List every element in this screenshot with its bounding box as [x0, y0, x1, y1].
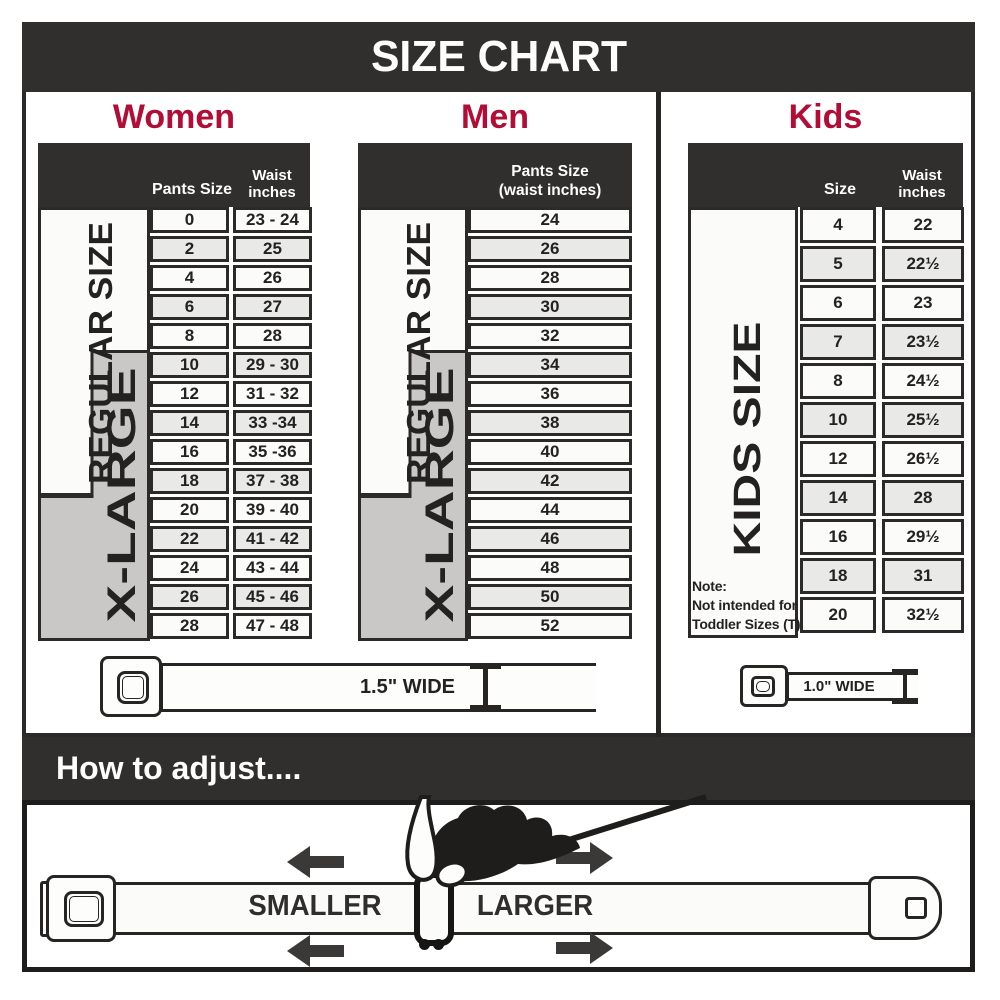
waist-inches-cell: 25: [233, 236, 312, 262]
men-col-line2: (waist inches): [468, 181, 632, 200]
men-table-row: 28: [468, 265, 632, 291]
adjust-buckle-slot-icon: [64, 891, 104, 927]
women-col-waist-line1: Waist: [236, 167, 308, 184]
kids-table-row: 4 22: [800, 207, 964, 243]
belt-slider-icon: [414, 872, 454, 946]
pants-size-cell: 24: [150, 555, 229, 581]
women-table-row: 16 35 -36: [150, 439, 312, 465]
waist-inches-cell: 32½: [882, 597, 964, 633]
kids-table-header: Size Waist inches: [688, 143, 963, 207]
size-chart-title-bar: SIZE CHART: [22, 22, 975, 92]
men-table-row: 42: [468, 468, 632, 494]
waist-inches-cell: 26½: [882, 441, 964, 477]
women-size-table: 0 23 - 24 2 25 4 26 6 27 8 28: [150, 207, 312, 642]
women-table-row: 18 37 - 38: [150, 468, 312, 494]
size-cell: 20: [800, 597, 876, 633]
pants-size-cell: 6: [150, 294, 229, 320]
women-col-waist: Waist inches: [236, 167, 308, 201]
pants-size-cell: 20: [150, 497, 229, 523]
size-cell: 10: [800, 402, 876, 438]
women-col-waist-line2: inches: [236, 184, 308, 201]
kids-note-line3: Toddler Sizes (T): [692, 615, 802, 634]
slider-foot-icon: [419, 939, 430, 950]
pants-size-cell: 34: [468, 352, 632, 378]
pants-size-cell: 44: [468, 497, 632, 523]
pants-size-cell: 28: [468, 265, 632, 291]
waist-inches-cell: 45 - 46: [233, 584, 312, 610]
kids-belt-width-label: 1.0" WIDE: [796, 672, 882, 701]
size-cell: 16: [800, 519, 876, 555]
women-section-title: Women: [38, 97, 310, 137]
men-size-table: 24 26 28 30 32 34 36: [468, 207, 632, 642]
size-cell: 14: [800, 480, 876, 516]
women-table-row: 28 47 - 48: [150, 613, 312, 639]
kids-side-labels: KIDS SIZE: [688, 207, 798, 638]
waist-inches-cell: 47 - 48: [233, 613, 312, 639]
pants-size-cell: 26: [468, 236, 632, 262]
adult-width-gauge-cap-icon: [470, 664, 501, 669]
waist-inches-cell: 28: [882, 480, 964, 516]
pants-size-cell: 4: [150, 265, 229, 291]
slider-foot-icon: [433, 939, 444, 950]
kids-width-gauge-cap-icon: [892, 700, 918, 704]
waist-inches-cell: 31: [882, 558, 964, 594]
kids-table-row: 6 23: [800, 285, 964, 321]
size-cell: 12: [800, 441, 876, 477]
size-cell: 8: [800, 363, 876, 399]
men-table-row: 30: [468, 294, 632, 320]
women-table-row: 20 39 - 40: [150, 497, 312, 523]
women-table-row: 12 31 - 32: [150, 381, 312, 407]
waist-inches-cell: 28: [233, 323, 312, 349]
size-cell: 4: [800, 207, 876, 243]
kids-table-row: 14 28: [800, 480, 964, 516]
size-cell: 5: [800, 246, 876, 282]
kids-col-size: Size: [800, 181, 880, 199]
men-table-row: 44: [468, 497, 632, 523]
kids-col-waist-line1: Waist: [883, 167, 961, 184]
adult-width-gauge-cap-icon: [470, 705, 501, 710]
pants-size-cell: 24: [468, 207, 632, 233]
kids-table-row: 20 32½: [800, 597, 964, 633]
how-to-adjust-title: How to adjust....: [56, 750, 301, 787]
pants-size-cell: 52: [468, 613, 632, 639]
men-side-labels: REGULAR SIZE X-LARGE: [358, 207, 468, 641]
waist-inches-cell: 25½: [882, 402, 964, 438]
men-table-row: 34: [468, 352, 632, 378]
pants-size-cell: 38: [468, 410, 632, 436]
kids-table-row: 5 22½: [800, 246, 964, 282]
size-cell: 18: [800, 558, 876, 594]
kids-note-line2: Not intended for: [692, 596, 802, 615]
larger-label: LARGER: [473, 890, 597, 923]
pants-size-cell: 32: [468, 323, 632, 349]
smaller-label: SMALLER: [248, 890, 376, 923]
size-chart-infographic: SIZE CHART Women Men Kids Pants Size Wai…: [0, 0, 1000, 1000]
men-col-line1: Pants Size: [468, 162, 632, 181]
waist-inches-cell: 26: [233, 265, 312, 291]
men-table-row: 48: [468, 555, 632, 581]
women-table-row: 4 26: [150, 265, 312, 291]
men-table-header: Pants Size (waist inches): [358, 143, 632, 207]
adult-width-gauge-icon: [483, 666, 488, 710]
women-col-pants-size: Pants Size: [150, 181, 234, 199]
women-table-row: 22 41 - 42: [150, 526, 312, 552]
women-table-row: 0 23 - 24: [150, 207, 312, 233]
men-table-row: 50: [468, 584, 632, 610]
waist-inches-cell: 22½: [882, 246, 964, 282]
women-table-row: 2 25: [150, 236, 312, 262]
pants-size-cell: 10: [150, 352, 229, 378]
waist-inches-cell: 29½: [882, 519, 964, 555]
men-table-row: 32: [468, 323, 632, 349]
kids-size-table: 4 22 5 22½ 6 23 7 23½ 8 24½: [800, 207, 964, 636]
kids-note-line1: Note:: [692, 577, 802, 596]
kids-width-gauge-icon: [903, 671, 907, 703]
waist-inches-cell: 22: [882, 207, 964, 243]
pants-size-cell: 30: [468, 294, 632, 320]
kids-table-row: 16 29½: [800, 519, 964, 555]
pants-size-cell: 28: [150, 613, 229, 639]
women-table-row: 24 43 - 44: [150, 555, 312, 581]
pants-size-cell: 18: [150, 468, 229, 494]
kids-size-label: KIDS SIZE: [727, 322, 769, 557]
adult-buckle-slot-icon: [117, 671, 149, 704]
women-side-labels: REGULAR SIZE X-LARGE: [38, 207, 150, 641]
waist-inches-cell: 37 - 38: [233, 468, 312, 494]
waist-inches-cell: 41 - 42: [233, 526, 312, 552]
kids-table-row: 7 23½: [800, 324, 964, 360]
kids-col-waist-line2: inches: [883, 184, 961, 201]
pants-size-cell: 12: [150, 381, 229, 407]
women-xlarge-label: X-LARGE: [100, 368, 144, 623]
waist-inches-cell: 23½: [882, 324, 964, 360]
waist-inches-cell: 29 - 30: [233, 352, 312, 378]
size-cell: 7: [800, 324, 876, 360]
kids-col-waist: Waist inches: [883, 167, 961, 201]
waist-inches-cell: 23: [882, 285, 964, 321]
pants-size-cell: 42: [468, 468, 632, 494]
kids-buckle-slot-icon: [751, 676, 775, 697]
men-table-row: 38: [468, 410, 632, 436]
pants-size-cell: 8: [150, 323, 229, 349]
waist-inches-cell: 27: [233, 294, 312, 320]
women-table-row: 6 27: [150, 294, 312, 320]
pants-size-cell: 26: [150, 584, 229, 610]
women-table-row: 26 45 - 46: [150, 584, 312, 610]
men-table-row: 24: [468, 207, 632, 233]
men-table-row: 26: [468, 236, 632, 262]
pants-size-cell: 50: [468, 584, 632, 610]
kids-table-row: 18 31: [800, 558, 964, 594]
women-table-row: 10 29 - 30: [150, 352, 312, 378]
waist-inches-cell: 23 - 24: [233, 207, 312, 233]
pants-size-cell: 2: [150, 236, 229, 262]
men-table-row: 52: [468, 613, 632, 639]
men-kids-divider: [656, 92, 661, 737]
page-title: SIZE CHART: [370, 32, 626, 82]
kids-table-row: 10 25½: [800, 402, 964, 438]
women-table-row: 14 33 -34: [150, 410, 312, 436]
pants-size-cell: 0: [150, 207, 229, 233]
men-table-row: 40: [468, 439, 632, 465]
size-cell: 6: [800, 285, 876, 321]
waist-inches-cell: 24½: [882, 363, 964, 399]
pants-size-cell: 14: [150, 410, 229, 436]
waist-inches-cell: 35 -36: [233, 439, 312, 465]
men-table-row: 46: [468, 526, 632, 552]
women-table-row: 8 28: [150, 323, 312, 349]
kids-table-row: 12 26½: [800, 441, 964, 477]
pants-size-cell: 48: [468, 555, 632, 581]
waist-inches-cell: 43 - 44: [233, 555, 312, 581]
pants-size-cell: 36: [468, 381, 632, 407]
pants-size-cell: 16: [150, 439, 229, 465]
pants-size-cell: 40: [468, 439, 632, 465]
men-xlarge-label: X-LARGE: [418, 368, 462, 623]
waist-inches-cell: 39 - 40: [233, 497, 312, 523]
women-table-header: Pants Size Waist inches: [38, 143, 310, 207]
waist-inches-cell: 31 - 32: [233, 381, 312, 407]
men-table-row: 36: [468, 381, 632, 407]
kids-table-row: 8 24½: [800, 363, 964, 399]
pants-size-cell: 22: [150, 526, 229, 552]
how-to-adjust-bar: How to adjust....: [22, 737, 975, 800]
kids-width-gauge-cap-icon: [892, 669, 918, 673]
adult-belt-width-label: 1.5" WIDE: [315, 663, 455, 712]
pants-size-cell: 46: [468, 526, 632, 552]
waist-inches-cell: 33 -34: [233, 410, 312, 436]
kids-note: Note: Not intended for Toddler Sizes (T): [692, 577, 802, 634]
men-col-pants-size: Pants Size (waist inches): [468, 162, 632, 200]
kids-section-title: Kids: [688, 97, 963, 137]
men-section-title: Men: [358, 97, 632, 137]
belt-tongue-hole-icon: [905, 897, 927, 919]
